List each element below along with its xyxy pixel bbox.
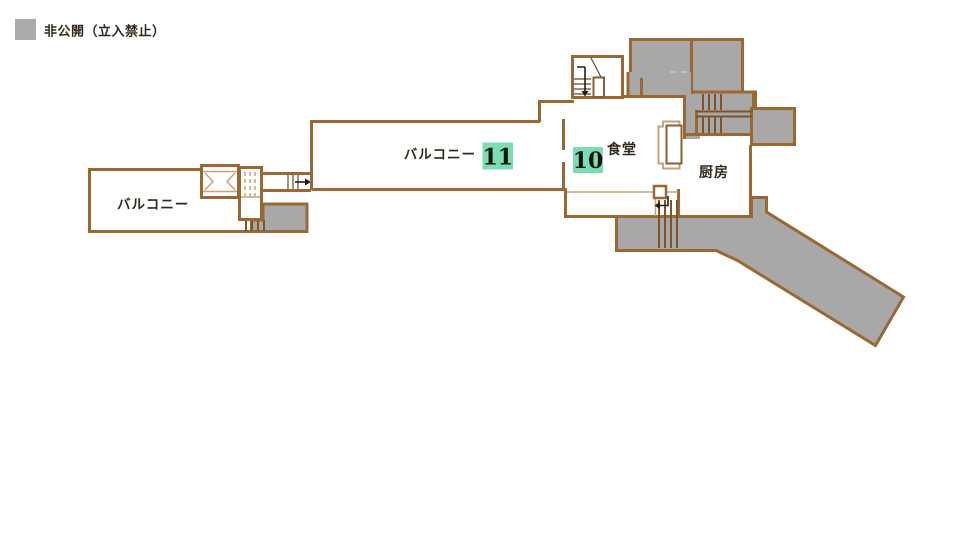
floor-plan-svg: 非公開（立入禁止） バルコニー xyxy=(0,0,980,542)
balcony-left: バルコニー xyxy=(90,166,265,232)
fireplace xyxy=(659,122,682,169)
balcony-left-label: バルコニー xyxy=(117,197,189,212)
dining-bottom-walls xyxy=(539,189,753,218)
legend-label: 非公開（立入禁止） xyxy=(44,24,166,39)
balcony-main-walls xyxy=(312,101,575,190)
bridge-corridor xyxy=(261,174,311,191)
fireplace-inner xyxy=(667,126,682,164)
kitchen-label: 厨房 xyxy=(699,164,729,180)
legend-restricted-swatch xyxy=(15,19,36,40)
balcony-main-label: バルコニー xyxy=(404,147,476,162)
dining-label: 食堂 xyxy=(607,141,637,157)
room-badge-11-number: 11 xyxy=(482,145,513,171)
restricted-room-c xyxy=(752,109,795,145)
kitchen: 厨房 xyxy=(699,145,751,216)
restricted-room-a xyxy=(631,40,693,74)
terrace-post xyxy=(654,186,666,198)
gate-structure xyxy=(202,166,239,198)
room-badge-10: 10 xyxy=(573,147,604,174)
stairwell-inner-box xyxy=(594,78,605,98)
legend: 非公開（立入禁止） xyxy=(15,19,166,40)
room-badge-11: 11 xyxy=(482,143,513,171)
room-badge-10-number: 10 xyxy=(573,148,604,174)
floor-plan-page: 非公開（立入禁止） バルコニー xyxy=(0,0,980,542)
balcony-main: バルコニー 11 xyxy=(312,101,575,190)
restricted-room-b xyxy=(692,40,743,94)
